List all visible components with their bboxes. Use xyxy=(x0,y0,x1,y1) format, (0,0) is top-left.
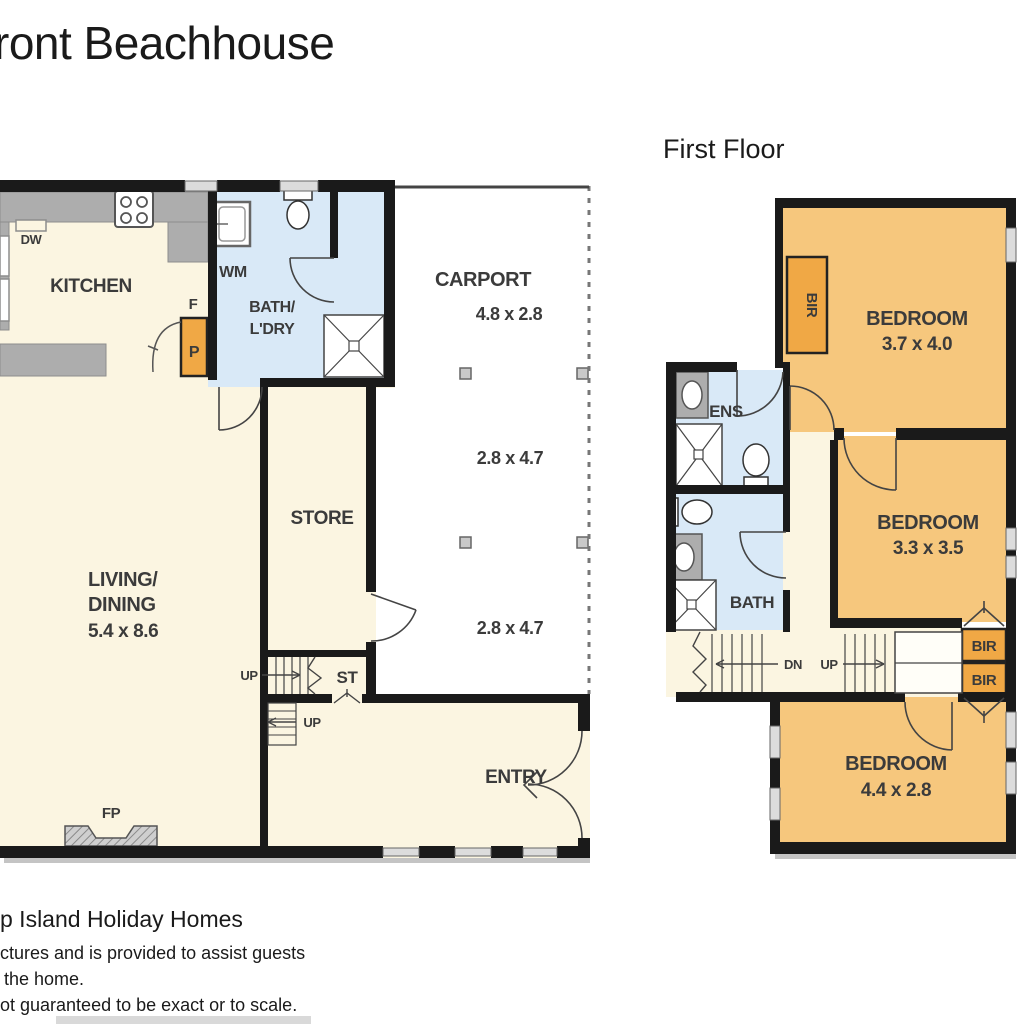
bedroom3-label: BEDROOM xyxy=(845,753,947,775)
kitchen-island xyxy=(0,344,106,376)
ensuite-toilet-icon xyxy=(743,444,769,486)
floorplan-page: ront Beachhouse First Floor xyxy=(0,0,1024,1024)
toilet-icon xyxy=(284,189,312,229)
ground-floor-shadow xyxy=(4,858,590,863)
stovetop-icon xyxy=(115,191,153,227)
ground-floor-plan: KITCHEN DW WM F P BATH/ L'DRY CARPORT 4.… xyxy=(0,180,590,863)
washing-machine-icon xyxy=(214,202,250,246)
footer-company: p Island Holiday Homes xyxy=(0,906,243,933)
footer-note-1: ctures and is provided to assist guests xyxy=(0,943,305,964)
up-label: UP xyxy=(820,657,838,672)
dw-label: DW xyxy=(21,232,43,247)
shower-icon xyxy=(324,315,384,377)
bir1-label: BIR xyxy=(803,293,820,318)
dishwasher-icon xyxy=(16,220,46,231)
living-dim: 5.4 x 8.6 xyxy=(88,621,158,642)
st-label: ST xyxy=(337,668,359,687)
floorplan-drawing: KITCHEN DW WM F P BATH/ L'DRY CARPORT 4.… xyxy=(0,0,1024,1024)
bedroom2-dim: 3.3 x 3.5 xyxy=(893,538,964,559)
fireplace-label: FP xyxy=(102,805,121,822)
bedroom3-dim: 4.4 x 2.8 xyxy=(861,780,931,801)
pantry-label: P xyxy=(189,344,200,361)
bathroom-label: BATH xyxy=(730,593,774,612)
first-floor-shadow xyxy=(775,854,1016,859)
living-label-2: DINING xyxy=(88,594,156,616)
bedroom1-label: BEDROOM xyxy=(866,308,968,330)
up-label-2: UP xyxy=(303,715,321,730)
store-label: STORE xyxy=(290,508,353,529)
up-label-1: UP xyxy=(240,668,258,683)
wm-label: WM xyxy=(219,264,247,281)
carport-dim: 4.8 x 2.8 xyxy=(476,304,543,324)
left-appliance-icon xyxy=(0,279,9,321)
fridge-label: F xyxy=(189,296,198,313)
ensuite-label: ENS xyxy=(709,402,743,421)
carport-label: CARPORT xyxy=(435,269,531,291)
bath-ldry-label-1: BATH/ xyxy=(249,299,296,316)
ensuite-basin-icon xyxy=(676,372,708,418)
first-floor-plan: BEDROOM 3.7 x 4.0 BEDROOM 3.3 x 3.5 BEDR… xyxy=(666,198,1016,859)
carport-dim-mid: 2.8 x 4.7 xyxy=(477,448,544,468)
living-label-1: LIVING/ xyxy=(88,569,158,591)
bir3-label: BIR xyxy=(972,672,997,689)
entry-label: ENTRY xyxy=(485,767,547,788)
bedroom2-label: BEDROOM xyxy=(877,512,979,534)
ensuite-shower-icon xyxy=(676,424,722,486)
footer-divider xyxy=(56,1016,311,1024)
bath-ldry-label-2: L'DRY xyxy=(250,321,295,338)
dn-label: DN xyxy=(784,657,802,672)
bir2-label: BIR xyxy=(972,638,997,655)
left-appliance-icon xyxy=(0,236,9,276)
footer-note-2: the home. xyxy=(4,969,84,990)
carport-dim-low: 2.8 x 4.7 xyxy=(477,618,544,638)
kitchen-label: KITCHEN xyxy=(50,276,132,297)
bedroom1-dim: 3.7 x 4.0 xyxy=(882,334,952,355)
footer-note-3: ot guaranteed to be exact or to scale. xyxy=(0,995,297,1016)
